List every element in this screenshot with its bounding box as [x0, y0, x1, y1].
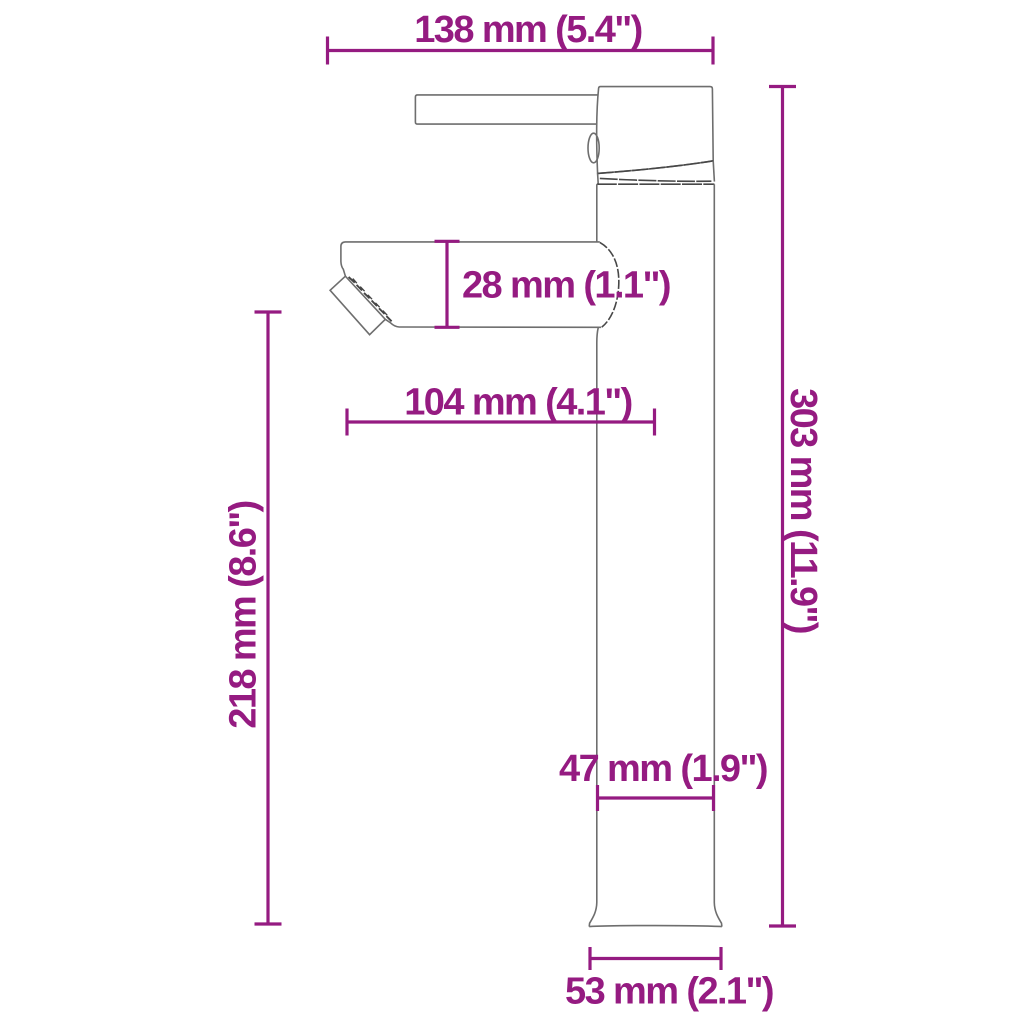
svg-text:218 mm (8.6"): 218 mm (8.6") [223, 501, 265, 728]
svg-text:303 mm (11.9"): 303 mm (11.9") [782, 388, 824, 633]
svg-text:47 mm (1.9"): 47 mm (1.9") [559, 748, 767, 790]
svg-text:28 mm (1.1"): 28 mm (1.1") [462, 265, 670, 307]
svg-text:138 mm (5.4"): 138 mm (5.4") [414, 9, 641, 51]
svg-text:53 mm (2.1"): 53 mm (2.1") [565, 971, 773, 1013]
svg-text:104 mm (4.1"): 104 mm (4.1") [404, 382, 631, 424]
